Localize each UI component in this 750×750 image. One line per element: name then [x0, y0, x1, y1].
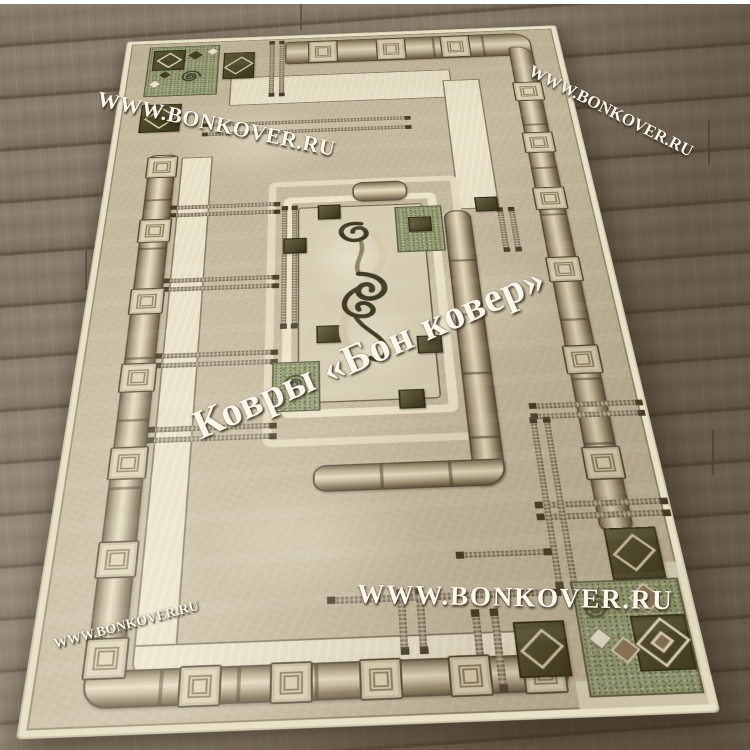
diamond-outline-icon: [156, 53, 182, 68]
border-line: [292, 207, 298, 327]
greek-key-tile: [521, 131, 556, 153]
dark-square: [283, 238, 306, 254]
diamond-outline-icon: [612, 534, 656, 573]
olive-diamond-square: [603, 526, 666, 580]
greek-key-tile: [581, 446, 627, 481]
floor-plank-joint: [85, 250, 87, 290]
greek-key-tile: [145, 156, 179, 178]
greek-key-tile: [375, 38, 406, 60]
greek-key-tile: [545, 256, 584, 283]
dark-square: [474, 196, 499, 211]
spiral-icon: [177, 67, 208, 86]
greek-key-tile: [128, 288, 166, 316]
diamond-icon: [588, 628, 612, 650]
watermark-site-url-bottom: WWW.BONKOVER.RU: [357, 580, 674, 614]
greek-key-tile: [532, 186, 569, 210]
border-line: [458, 549, 549, 558]
border-line: [497, 209, 509, 251]
floor-plank-joint: [300, 0, 302, 30]
greek-key-tile: [137, 218, 173, 243]
greek-key-tile: [118, 362, 158, 393]
olive-diamond-square: [222, 52, 255, 79]
medallion-bamboo-bar-horizontal: [313, 458, 508, 492]
diamond-icon: [158, 71, 172, 80]
floor-plank-joint: [712, 430, 714, 475]
greek-key-tile: [94, 540, 140, 579]
greek-key-tile: [447, 654, 494, 697]
rug-cream-band-top: [229, 69, 454, 106]
dark-square: [408, 216, 432, 232]
greek-key-tile: [269, 661, 312, 704]
rug-product-photo: WWW.BONKOVER.RU WWW.BONKOVER.RU Ковры «Б…: [0, 0, 750, 750]
olive-diamond-square: [629, 614, 697, 672]
diamond-outline-icon: [520, 628, 564, 669]
dark-square: [398, 389, 426, 409]
moss-square-top-left: [143, 45, 220, 97]
diamond-icon: [148, 80, 161, 88]
floor-plank-joint: [708, 120, 710, 165]
bamboo-bar-short: [352, 180, 408, 202]
olive-diamond-square: [513, 620, 573, 678]
diamond-icon: [187, 50, 204, 60]
diamond-icon: [206, 48, 219, 56]
greek-key-tile: [562, 344, 605, 374]
greek-key-tile: [81, 637, 130, 681]
diamond-outline-icon: [224, 56, 254, 74]
greek-key-tile: [107, 446, 150, 480]
greek-key-tile: [439, 35, 472, 57]
greek-key-tile: [308, 40, 338, 62]
greek-key-tile: [359, 658, 404, 701]
greek-key-tile: [177, 665, 222, 708]
border-line: [508, 208, 521, 250]
border-line: [279, 42, 285, 95]
